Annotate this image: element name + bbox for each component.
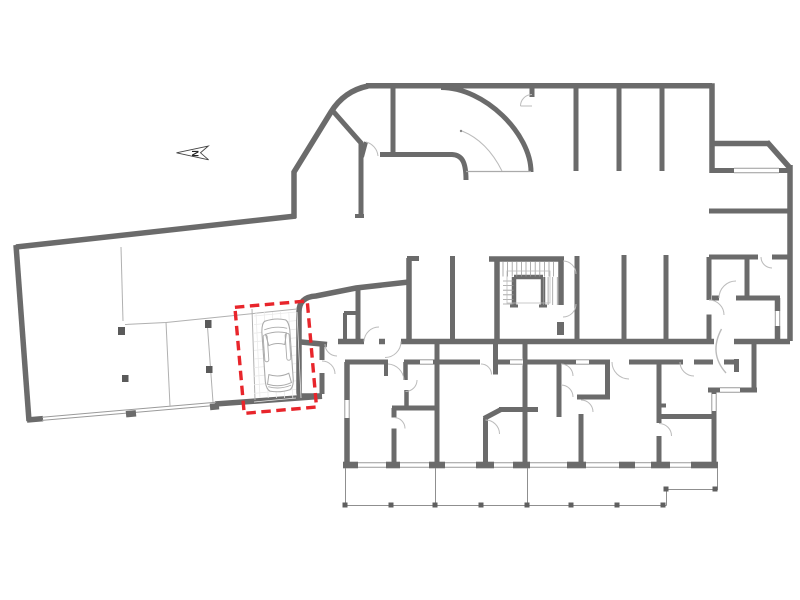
svg-text:N: N	[190, 150, 200, 157]
